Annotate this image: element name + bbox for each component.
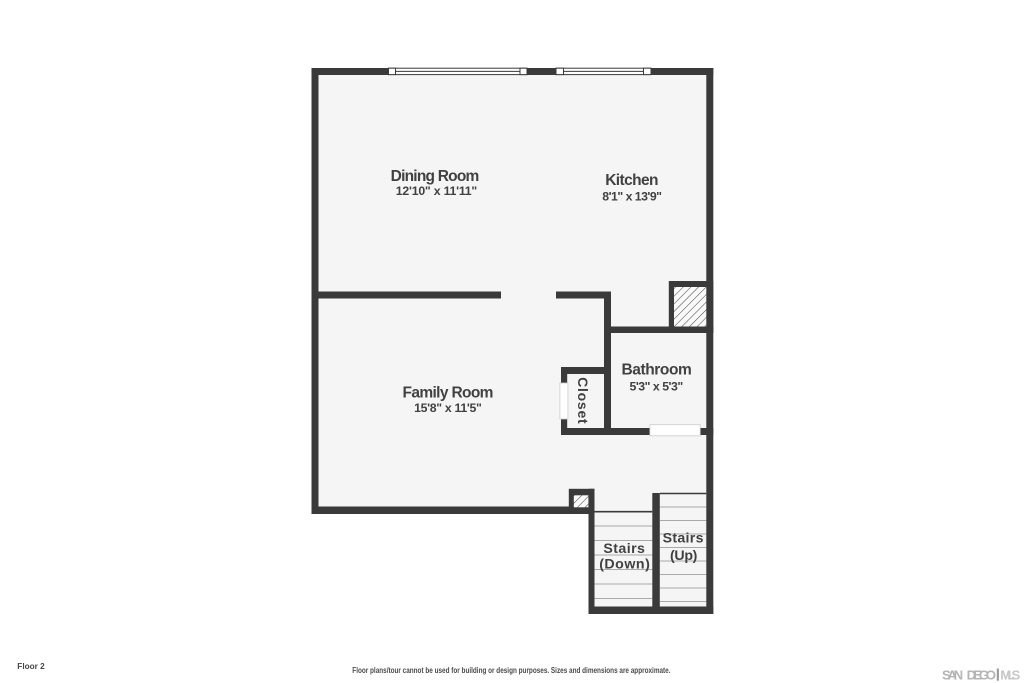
svg-text:Family Room: Family Room (403, 385, 494, 402)
svg-text:Kitchen: Kitchen (605, 172, 658, 189)
svg-text:Dining Room: Dining Room (391, 168, 480, 185)
svg-text:DIEGO: DIEGO (967, 667, 996, 682)
svg-text:Closet: Closet (575, 377, 591, 424)
svg-text:Stairs: Stairs (603, 541, 645, 557)
svg-text:15'8" x 11'5": 15'8" x 11'5" (414, 401, 482, 415)
svg-text:5'3" x 5'3": 5'3" x 5'3" (630, 380, 684, 394)
svg-text:Stairs: Stairs (663, 531, 704, 547)
svg-text:8'1" x 13'9": 8'1" x 13'9" (602, 189, 662, 203)
svg-text:MLS: MLS (1000, 667, 1020, 682)
svg-text:Floor plans/tour cannot be use: Floor plans/tour cannot be used for buil… (352, 666, 670, 675)
svg-text:12'10" x 11'11": 12'10" x 11'11" (396, 184, 478, 198)
svg-text:(Down): (Down) (599, 556, 650, 572)
svg-text:Floor 2: Floor 2 (17, 661, 45, 671)
svg-text:SAN: SAN (942, 667, 963, 682)
svg-text:(Up): (Up) (670, 548, 698, 564)
svg-text:Bathroom: Bathroom (622, 362, 692, 379)
